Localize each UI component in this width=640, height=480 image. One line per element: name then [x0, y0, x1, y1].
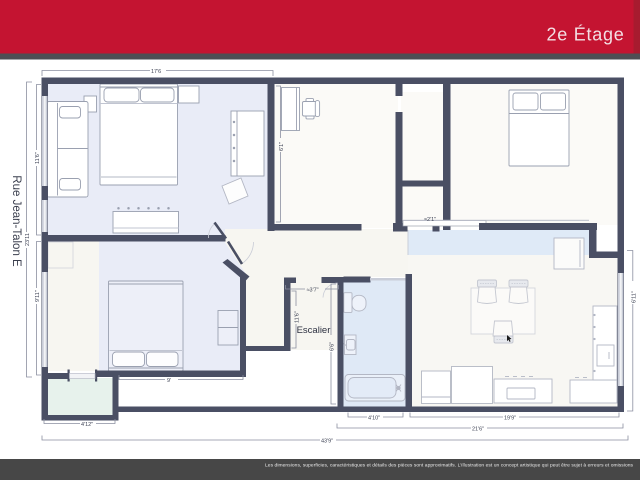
svg-text:17'6: 17'6	[151, 69, 161, 75]
svg-text:6'11": 6'11"	[632, 291, 638, 303]
svg-text:Escalier: Escalier	[297, 325, 331, 336]
svg-text:Rue Jean-Talon E: Rue Jean-Talon E	[10, 175, 22, 267]
svg-text:19'9": 19'9"	[504, 416, 516, 422]
svg-text:4'12": 4'12"	[81, 422, 93, 428]
svg-text:6'6": 6'6"	[330, 342, 336, 351]
svg-text:≈3'7": ≈3'7"	[307, 287, 319, 293]
svg-text:4'10": 4'10"	[368, 416, 380, 422]
svg-text:11'6": 11'6"	[35, 152, 41, 164]
svg-text:23'11: 23'11	[25, 233, 31, 246]
svg-text:11'6": 11'6"	[295, 311, 301, 323]
svg-text:9'11": 9'11"	[35, 290, 41, 302]
svg-text:21'6": 21'6"	[472, 427, 484, 433]
svg-text:6'1": 6'1"	[279, 142, 285, 151]
svg-text:Les dimensions, superficies, c: Les dimensions, superficies, caractérist…	[265, 463, 634, 469]
svg-text:43'9": 43'9"	[321, 439, 333, 445]
svg-text:9': 9'	[167, 378, 171, 384]
svg-text:2e Étage: 2e Étage	[546, 25, 624, 45]
svg-text:≈2'1": ≈2'1"	[424, 217, 436, 223]
